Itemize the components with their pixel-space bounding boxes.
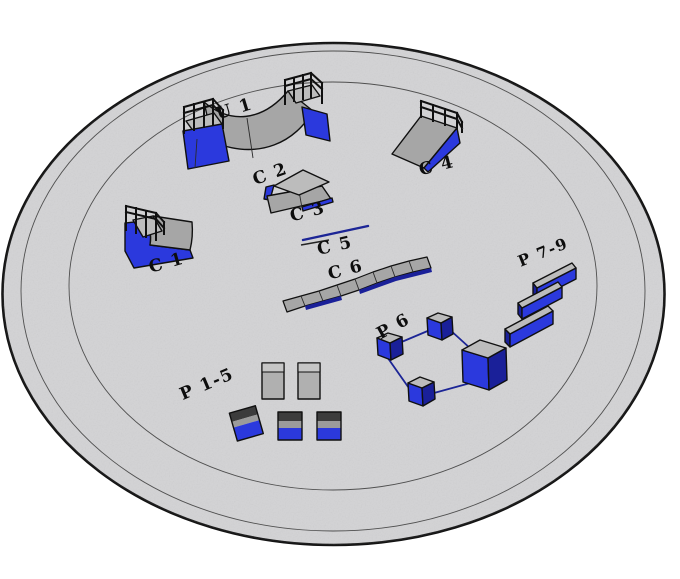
p4-cube [278, 412, 302, 440]
p6-bottom-block [408, 377, 435, 406]
diagram-canvas: U 1 C 2 C 3 C 5 C 6 C 1 C 4 P 1-5 P 6 P … [0, 0, 680, 579]
u1-left-base [183, 124, 229, 169]
p5-cube [317, 412, 341, 440]
skatepark-3d-diagram: U 1 C 2 C 3 C 5 C 6 C 1 C 4 P 1-5 P 6 P … [0, 0, 680, 579]
p1-tall-box [262, 363, 284, 399]
p2-tall-box [298, 363, 320, 399]
p6-top-block [427, 313, 453, 340]
p6-large-block [462, 340, 507, 390]
